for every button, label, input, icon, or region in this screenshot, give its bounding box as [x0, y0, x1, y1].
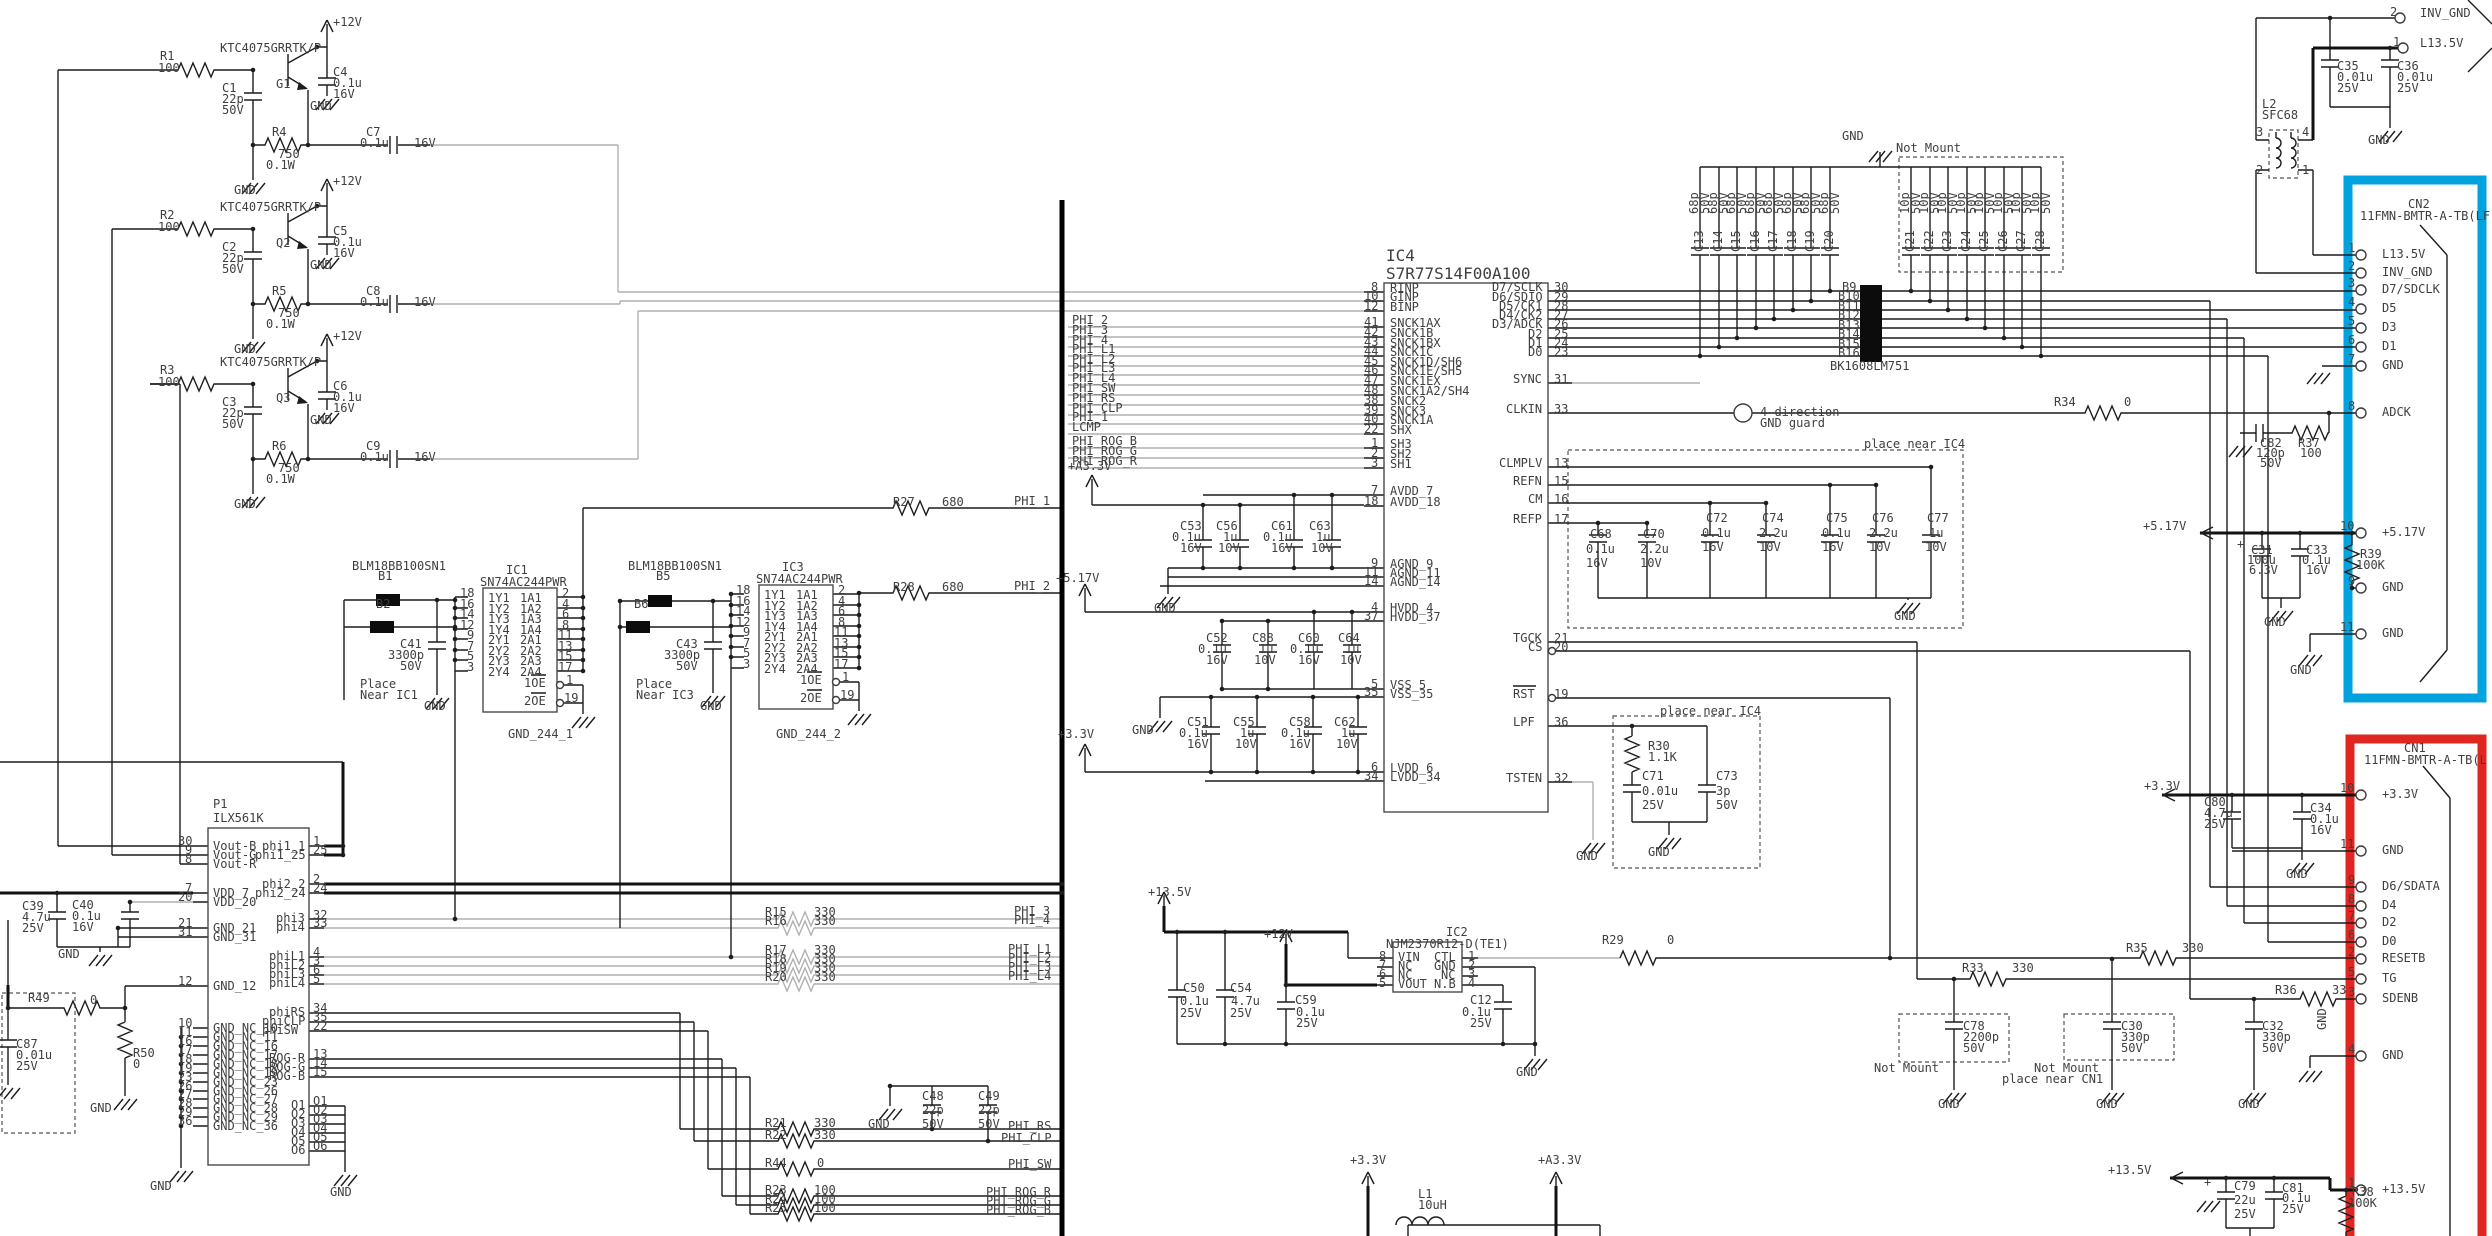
- tq-text: 0.1W: [266, 159, 295, 171]
- ic4g-text: 37: [1364, 610, 1378, 622]
- reg-text: 25V: [1230, 1007, 1252, 1019]
- buf-text: 50V: [676, 660, 698, 672]
- nearic4-text: C68: [1590, 528, 1612, 540]
- cn1-highlight-box: [2350, 739, 2482, 1236]
- l2-coil: [2276, 132, 2296, 168]
- cbank-text: 10V: [1311, 542, 1333, 554]
- rrow-text: C49: [978, 1090, 1000, 1102]
- cn1g-text: SDENB: [2382, 992, 2418, 1004]
- buf-text: Near IC1: [360, 689, 418, 701]
- cn2g-text: 100K: [2356, 559, 2385, 571]
- ic4g-text: 17: [1554, 513, 1568, 525]
- rr-text: place near CN1: [2002, 1073, 2103, 1085]
- cn1g-text: TG: [2382, 972, 2396, 984]
- tr-text: 25V: [2337, 82, 2359, 94]
- buf-text: GND_244_1: [508, 728, 573, 740]
- bc-text: 10uH: [1418, 1199, 1447, 1211]
- tq-text: 16V: [333, 88, 355, 100]
- cn2g-text: GND: [2382, 359, 2404, 371]
- cn2g-text: 4: [2348, 296, 2355, 308]
- tq-text: +12V: [333, 175, 362, 187]
- rrow-text: PHI_L4: [1008, 970, 1051, 982]
- topbank-text: C14: [1712, 230, 1724, 252]
- p1g-text: 36: [178, 1115, 192, 1127]
- ic1-part: SN74AC244PWR: [480, 576, 567, 588]
- busN-text: +5.17V: [1056, 572, 1099, 584]
- cbank-text: 16V: [1271, 542, 1293, 554]
- tr-text: 1: [2302, 164, 2309, 176]
- reg-text: GND: [1516, 1066, 1538, 1078]
- rrow-text: 0: [817, 1157, 824, 1169]
- rrow-text: 22p: [978, 1104, 1000, 1116]
- buf-text: B5: [656, 570, 670, 582]
- nearic4-text: C73: [1716, 770, 1738, 782]
- ic4g-text: VSS_35: [1390, 688, 1433, 700]
- p1g-text: phi1_25: [255, 849, 306, 861]
- bl-text: 25V: [16, 1060, 38, 1072]
- buf-text: 1OE: [800, 674, 822, 686]
- rrow-text: 22p: [922, 1104, 944, 1116]
- tq-text: 0.1u: [360, 137, 389, 149]
- nearic4-text: C71: [1642, 770, 1664, 782]
- tr-text: L13.5V: [2420, 37, 2463, 49]
- cn1g-text: 9: [2348, 874, 2355, 886]
- buf-text: 1: [842, 671, 849, 683]
- busN-text: GND: [1154, 602, 1176, 614]
- buf-text: 2OE: [800, 692, 822, 704]
- nearic4-text: 2.2u: [1759, 527, 1788, 539]
- topbank-text: C28: [2034, 230, 2046, 252]
- p1-ref: P1: [213, 798, 227, 810]
- busN-text: GND: [1132, 724, 1154, 736]
- reg-text: C50: [1183, 982, 1205, 994]
- rrow-text: 50V: [978, 1118, 1000, 1130]
- nearic4-text: C76: [1872, 512, 1894, 524]
- tq-text: R4: [272, 126, 286, 138]
- reg-text: N.B: [1434, 978, 1456, 990]
- nearic4-text: C75: [1826, 512, 1848, 524]
- tq-text: 50V: [222, 104, 244, 116]
- bl-text: GND: [90, 1102, 112, 1114]
- topbank-text: C25: [1978, 230, 1990, 252]
- p1g-text: GND_NC_36: [213, 1120, 278, 1132]
- rr-text: R36: [2275, 984, 2297, 996]
- rrow-text: 330: [814, 971, 836, 983]
- topbank-text: C17: [1767, 230, 1779, 252]
- l2-part: SFC68: [2262, 109, 2298, 121]
- cn2-part: 11FMN-BMTR-A-TB(LF: [2360, 210, 2490, 222]
- tq-text: 0.1u: [360, 296, 389, 308]
- ic4g-text: HVDD_37: [1390, 611, 1441, 623]
- reg-text: 25V: [1470, 1017, 1492, 1029]
- tr-text: 4: [2302, 126, 2309, 138]
- cn1g-text: D2: [2382, 916, 2396, 928]
- p1g-text: 24: [313, 882, 327, 894]
- tr-text: 2: [2256, 164, 2263, 176]
- cn1g-text: 10: [2340, 782, 2354, 794]
- cbank-text: 10V: [1235, 738, 1257, 750]
- rr-text: GND: [2096, 1098, 2118, 1110]
- rr-text: 100K: [2348, 1197, 2377, 1209]
- buf-text: B6: [634, 598, 648, 610]
- tq-text: 16V: [414, 296, 436, 308]
- cn2g-text: INV_GND: [2382, 266, 2433, 278]
- cn1g-text: D6/SDATA: [2382, 880, 2440, 892]
- p1g-text: ROG-B: [269, 1070, 305, 1082]
- topbank-text: GND: [1842, 130, 1864, 142]
- ic4g-text: 23: [1554, 346, 1568, 358]
- ic4g-text: CLKIN: [1506, 403, 1542, 415]
- ic4g-text: AGND_14: [1390, 576, 1441, 588]
- nearic4-text: 10V: [1640, 557, 1662, 569]
- rrow-text: R44: [765, 1157, 787, 1169]
- cn2g-text: 5: [2348, 315, 2355, 327]
- nearic4-text: C72: [1706, 512, 1728, 524]
- cn2g-text: D5: [2382, 302, 2396, 314]
- cn2g-text: L13.5V: [2382, 248, 2425, 260]
- topbank-text: B16: [1838, 347, 1860, 359]
- nearic4-text: 2.2u: [1640, 543, 1669, 555]
- tq-text: 100: [158, 62, 180, 74]
- ic4g-text: CS: [1528, 641, 1542, 653]
- ic4g-text: 36: [1554, 716, 1568, 728]
- cn2g-text: 2: [2348, 260, 2355, 272]
- topbank-text: C19: [1804, 230, 1816, 252]
- ic4g-text: REFP: [1513, 513, 1542, 525]
- p1g-text: 20: [178, 891, 192, 903]
- buf-text: BLM18BB100SN1: [628, 560, 722, 572]
- bl-text: 25V: [22, 922, 44, 934]
- nearic4-text: GND: [1894, 610, 1916, 622]
- rr-text: 25V: [2234, 1208, 2256, 1220]
- buf-text: 19: [840, 689, 854, 701]
- tr-text: 25V: [2397, 82, 2419, 94]
- cbank-text: 16V: [1289, 738, 1311, 750]
- buf-text: GND_244_2: [776, 728, 841, 740]
- p1g-text: 31: [178, 926, 192, 938]
- tq-text: R5: [272, 285, 286, 297]
- tq-text: 16V: [333, 247, 355, 259]
- nearic4-text: C70: [1643, 528, 1665, 540]
- bead-array-part: BK1608LM751: [1830, 360, 1909, 372]
- topbank-text: C20: [1823, 230, 1835, 252]
- rr-text: 330: [2182, 942, 2204, 954]
- rr-text: GND: [2238, 1098, 2260, 1110]
- rr-text: Not Mount: [1874, 1062, 1939, 1074]
- rrow-text: PHI_4: [1014, 914, 1050, 926]
- nearic4-text: 10V: [1925, 541, 1947, 553]
- cn2g-text: GND: [2290, 664, 2312, 676]
- cn1g-text: 6: [2348, 929, 2355, 941]
- cn1g-text: GND: [2382, 1049, 2404, 1061]
- cn1g-text: D0: [2382, 935, 2396, 947]
- rr-text: R33: [1962, 962, 1984, 974]
- ic4g-text: 31: [1554, 373, 1568, 385]
- tq-text: GND: [234, 184, 256, 196]
- topbank-text: 50V: [1829, 192, 1841, 214]
- nearic4-text: 0.1u: [1586, 543, 1615, 555]
- cn2g-text: 3: [2348, 277, 2355, 289]
- tr-text: INV_GND: [2420, 7, 2471, 19]
- rr-text: 50V: [2262, 1042, 2284, 1054]
- ic4g-text: 15: [1554, 475, 1568, 487]
- cn2g-text: 10: [2340, 520, 2354, 532]
- topbank-text: C22: [1923, 230, 1935, 252]
- tq-text: GND: [310, 100, 332, 112]
- reg-text: 5: [1379, 977, 1386, 989]
- cn1g-text: GND: [2286, 868, 2308, 880]
- nearic4-text: place near IC4: [1864, 438, 1965, 450]
- rr-text: GND: [1938, 1098, 1960, 1110]
- nearic4-text: GND: [1576, 850, 1598, 862]
- cn1g-text: 16V: [2310, 824, 2332, 836]
- cn2g-text: 6.3V: [2249, 564, 2278, 576]
- nearic4-text: 10V: [1759, 541, 1781, 553]
- p1g-text: phi4: [276, 921, 305, 933]
- ic4g-text: 32: [1554, 772, 1568, 784]
- cn1g-text: GND: [2382, 844, 2404, 856]
- cn2g-text: 50V: [2260, 457, 2282, 469]
- nearic4-text: 2.2u: [1869, 527, 1898, 539]
- rr-text: GND: [2316, 1008, 2328, 1030]
- tq-text: GND: [234, 498, 256, 510]
- cn1g-text: +13.5V: [2382, 1183, 2425, 1195]
- schematic-canvas: KTC4075GRRTK/P+12VR1100C122p50VG1C40.1u1…: [0, 0, 2492, 1236]
- ic4g-text: CM: [1528, 493, 1542, 505]
- ic4g-text: 20: [1554, 641, 1568, 653]
- tq-text: 50V: [222, 263, 244, 275]
- nearic4-text: 3p: [1716, 785, 1730, 797]
- tq-text: 16V: [414, 137, 436, 149]
- ic4g-text: 34: [1364, 770, 1378, 782]
- tq-text: 100: [158, 376, 180, 388]
- tq-text: 100: [158, 221, 180, 233]
- cn2g-text: +: [2237, 538, 2244, 550]
- reg-text: VOUT: [1398, 978, 1427, 990]
- buf-text: 1: [566, 674, 573, 686]
- p1g-text: 12: [178, 975, 192, 987]
- cn2g-text: D3: [2382, 321, 2396, 333]
- tr-text: 2: [2390, 6, 2397, 18]
- p1g-text: GND: [330, 1186, 352, 1198]
- cn1g-text: D4: [2382, 899, 2396, 911]
- buf-text: 3: [743, 658, 750, 670]
- rrow-text: R25: [765, 1202, 787, 1214]
- topbank-text: C26: [1997, 230, 2009, 252]
- p1g-text: Vout-R: [213, 858, 256, 870]
- tq-text: GND: [234, 343, 256, 355]
- topbank-text: Not Mount: [1896, 142, 1961, 154]
- topbank-text: C27: [2015, 230, 2027, 252]
- cn2g-text: 11: [2340, 621, 2354, 633]
- buf-text: R28: [893, 581, 915, 593]
- ic4g-text: 33: [1554, 403, 1568, 415]
- cn1g-text: 8: [2348, 893, 2355, 905]
- p1g-text: 25: [313, 844, 327, 856]
- bc-text: +3.3V: [1350, 1154, 1386, 1166]
- ic2-part: NJM2370R12-D(TE1): [1386, 938, 1509, 950]
- bead-part: BLM18BB100SN1: [352, 560, 446, 572]
- ic4g-text: 3: [1371, 457, 1378, 469]
- cn2g-text: +5.17V: [2382, 526, 2425, 538]
- cbank-text: 16V: [1298, 654, 1320, 666]
- tq-text: 50V: [222, 418, 244, 430]
- ic4g-text: LPF: [1513, 716, 1535, 728]
- buf-text: B2: [376, 598, 390, 610]
- nearic4-text: 0.1u: [1822, 527, 1851, 539]
- cn2g-text: 1: [2348, 242, 2355, 254]
- ic4g-text: 35: [1364, 686, 1378, 698]
- q1-part: KTC4075GRRTK/P: [220, 42, 321, 54]
- buf-text: 50V: [400, 660, 422, 672]
- nearic4-text: 25V: [1642, 799, 1664, 811]
- cn1-part: 11FMN-BMTR-A-TB(L: [2364, 754, 2487, 766]
- rrow-text: 100: [814, 1202, 836, 1214]
- cn2g-text: 8: [2348, 400, 2355, 412]
- buf-text: 2OE: [524, 695, 546, 707]
- rr-text: 50V: [2121, 1042, 2143, 1054]
- buf-text: 2Y4: [764, 663, 786, 675]
- ic4g-text: SHX: [1390, 424, 1412, 436]
- rrow-text: PHI_CLP: [1001, 1132, 1052, 1144]
- cbank-text: 10V: [1336, 738, 1358, 750]
- rr-text: 0: [1667, 934, 1674, 946]
- ic4g-text: 19: [1554, 688, 1568, 700]
- p1g-text: phi2_24: [255, 887, 306, 899]
- rrow-text: PHI_ROG_B: [986, 1204, 1051, 1216]
- buf-text: 19: [564, 692, 578, 704]
- bl-text: 0: [133, 1058, 140, 1070]
- cn2g-text: GND: [2264, 616, 2286, 628]
- tq-text: +12V: [333, 16, 362, 28]
- ic4g-text: 12: [1364, 300, 1378, 312]
- nearic4-text: C74: [1762, 512, 1784, 524]
- tr-text: 3: [2256, 126, 2263, 138]
- topbank-text: C21: [1904, 230, 1916, 252]
- cn1g-text: 4: [2348, 1043, 2355, 1055]
- tq-text: 0.1W: [266, 318, 295, 330]
- busN-text: LCMP: [1072, 421, 1101, 433]
- rr-text: 25V: [2282, 1203, 2304, 1215]
- nearic4-text: 0.01u: [1642, 785, 1678, 797]
- ic4g-text: AVDD_18: [1390, 496, 1441, 508]
- reg-text: 25V: [1296, 1017, 1318, 1029]
- cn2g-text: D7/SDCLK: [2382, 283, 2440, 295]
- bl-text: 16V: [72, 921, 94, 933]
- q2-part: KTC4075GRRTK/P: [220, 201, 321, 213]
- bl-text: GND: [58, 948, 80, 960]
- reg-text: +13.5V: [1148, 886, 1191, 898]
- ic4g-text: 14: [1364, 575, 1378, 587]
- p1g-text: 33: [313, 917, 327, 929]
- ic4-ref: IC4: [1386, 248, 1415, 264]
- ic4g-text: TSTEN: [1506, 772, 1542, 784]
- buf-text: 3: [467, 661, 474, 673]
- cbank-text: 10V: [1340, 654, 1362, 666]
- cn2g-text: 9: [2348, 575, 2355, 587]
- cn2g-text: 0: [2124, 396, 2131, 408]
- tq-text: 0.1u: [360, 451, 389, 463]
- cn2g-text: R34: [2054, 396, 2076, 408]
- buf-text: PHI_1: [1014, 495, 1050, 507]
- buf-text: 1OE: [524, 677, 546, 689]
- nearic4-text: place near IC4: [1660, 705, 1761, 717]
- p1g-text: O6: [313, 1140, 327, 1152]
- rrow-text: 330: [814, 915, 836, 927]
- ic4g-text: RST: [1513, 688, 1535, 700]
- ic4g-text: 22: [1364, 423, 1378, 435]
- nearic4-text: 0.1u: [1702, 527, 1731, 539]
- ic4g-text: 18: [1364, 495, 1378, 507]
- p1g-text: 8: [185, 853, 192, 865]
- cn1g-text: 3: [2348, 986, 2355, 998]
- tq-text: GND: [310, 414, 332, 426]
- rr-text: R35: [2126, 942, 2148, 954]
- rrow-text: PHI_SW: [1008, 1158, 1051, 1170]
- cn2g-text: GND: [2382, 627, 2404, 639]
- q1-ref: G1: [276, 78, 290, 90]
- rr-text: 33: [2332, 984, 2346, 996]
- p1g-text: GND_12: [213, 980, 256, 992]
- ic4g-text: REFN: [1513, 475, 1542, 487]
- rrow-text: GND: [868, 1118, 890, 1130]
- buf-text: 17: [558, 661, 572, 673]
- cn2g-text: ADCK: [2382, 406, 2411, 418]
- tq-text: 0.1W: [266, 473, 295, 485]
- rr-text: +: [2204, 1176, 2211, 1188]
- q3-part: KTC4075GRRTK/P: [220, 356, 321, 368]
- rr-text: 22u: [2234, 1194, 2256, 1206]
- rr-text: R29: [1602, 934, 1624, 946]
- cn2g-text: D1: [2382, 340, 2396, 352]
- busN-text: PHI_ROG_R: [1072, 455, 1137, 467]
- tr-text: GND: [2368, 134, 2390, 146]
- p1g-text: 22: [313, 1020, 327, 1032]
- cn2g-text: 16V: [2306, 564, 2328, 576]
- nearic4-text: C77: [1927, 512, 1949, 524]
- cn2g-text: +5.17V: [2143, 520, 2186, 532]
- cbank-text: 16V: [1187, 738, 1209, 750]
- cbank-text: 16V: [1180, 542, 1202, 554]
- tq-text: 16V: [333, 402, 355, 414]
- q2-ref: Q2: [276, 237, 290, 249]
- bl-text: R49: [28, 992, 50, 1004]
- rrow-text: 50V: [922, 1118, 944, 1130]
- nearic4-text: 50V: [1716, 799, 1738, 811]
- buf-text: 680: [942, 581, 964, 593]
- nearic4-text: 10V: [1869, 541, 1891, 553]
- buf-text: 2Y4: [488, 666, 510, 678]
- reg-text: +12V: [1264, 928, 1293, 940]
- cn2g-text: 7: [2348, 353, 2355, 365]
- tq-text: +12V: [333, 330, 362, 342]
- rrow-text: R20: [765, 971, 787, 983]
- p1-part: ILX561K: [213, 812, 264, 824]
- topbank-text: C18: [1786, 230, 1798, 252]
- buf-text: GND: [700, 700, 722, 712]
- rr-text: +13.5V: [2108, 1164, 2151, 1176]
- ic3-part: SN74AC244PWR: [756, 573, 843, 585]
- busN-text: +3.3V: [1058, 728, 1094, 740]
- buf-text: PHI_2: [1014, 580, 1050, 592]
- tq-text: GND: [310, 259, 332, 271]
- tr-text: 1: [2393, 36, 2400, 48]
- rr-text: 50V: [1963, 1042, 1985, 1054]
- topbank-text: C16: [1749, 230, 1761, 252]
- cn1g-text: +3.3V: [2382, 788, 2418, 800]
- ic4g-text: 16: [1554, 493, 1568, 505]
- ic4g-text: D0: [1528, 346, 1542, 358]
